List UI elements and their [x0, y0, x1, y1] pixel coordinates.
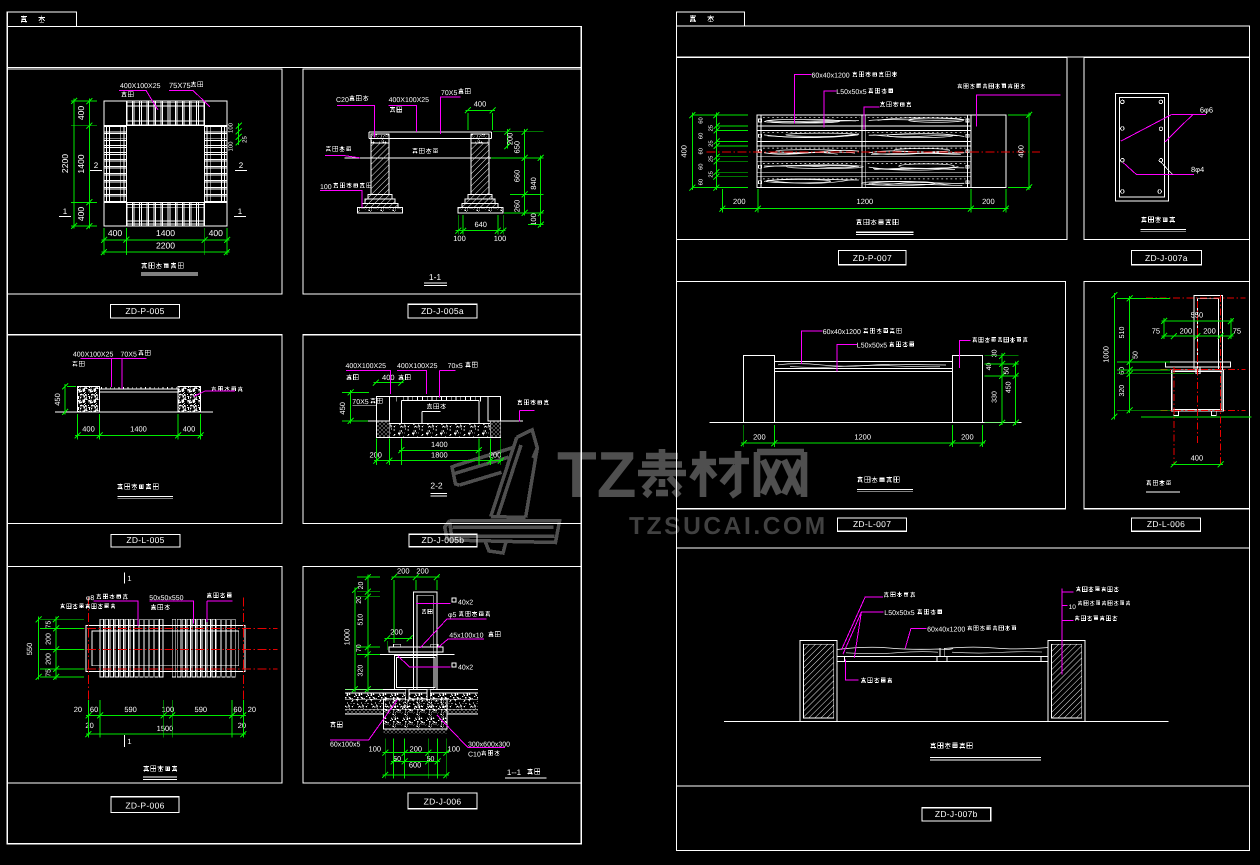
svg-text:100: 100 — [228, 122, 235, 133]
svg-text:75: 75 — [46, 669, 53, 677]
svg-text:200: 200 — [369, 450, 382, 459]
svg-text:ZD-J-006: ZD-J-006 — [424, 797, 462, 807]
svg-text:200: 200 — [1180, 326, 1193, 335]
svg-text:25: 25 — [708, 156, 715, 162]
svg-text:320: 320 — [357, 665, 364, 677]
svg-text:1400: 1400 — [156, 228, 175, 238]
svg-text:75X75: 75X75 — [169, 81, 191, 90]
svg-text:75: 75 — [1233, 326, 1241, 335]
svg-text:25: 25 — [708, 140, 715, 146]
svg-text:400: 400 — [680, 145, 689, 158]
svg-text:1400: 1400 — [76, 154, 86, 173]
svg-text:ZD-J-005a: ZD-J-005a — [421, 306, 464, 316]
svg-text:550: 550 — [1191, 311, 1204, 320]
svg-text:ZD-P-007: ZD-P-007 — [853, 253, 892, 263]
svg-text:400X100X25: 400X100X25 — [73, 351, 114, 358]
svg-text:200: 200 — [753, 433, 766, 442]
svg-text:660: 660 — [513, 170, 522, 183]
svg-text:550: 550 — [25, 643, 34, 656]
svg-text:50: 50 — [427, 756, 435, 763]
svg-text:1800: 1800 — [431, 450, 448, 459]
svg-text:20: 20 — [85, 721, 93, 730]
svg-text:590: 590 — [124, 705, 137, 714]
svg-text:400: 400 — [183, 425, 196, 434]
svg-text:510: 510 — [357, 614, 364, 626]
svg-text:200: 200 — [410, 745, 423, 754]
svg-text:50: 50 — [1004, 367, 1011, 375]
svg-text:330: 330 — [991, 391, 998, 403]
svg-text:ZD-J-005b: ZD-J-005b — [421, 535, 464, 545]
svg-text:100: 100 — [448, 745, 461, 754]
svg-text:400: 400 — [76, 207, 86, 222]
svg-text:200: 200 — [397, 567, 410, 576]
svg-text:1000: 1000 — [1102, 346, 1111, 363]
svg-text:1--1: 1--1 — [507, 768, 522, 777]
svg-text:6φ6: 6φ6 — [1200, 105, 1213, 114]
svg-text:10: 10 — [1069, 604, 1077, 611]
svg-text:200: 200 — [416, 567, 429, 576]
svg-text:100: 100 — [369, 745, 382, 754]
svg-text:40x2: 40x2 — [458, 600, 473, 607]
svg-text:ZD-L-006: ZD-L-006 — [1147, 519, 1185, 529]
svg-text:60: 60 — [698, 148, 705, 154]
svg-text:45x100x10: 45x100x10 — [449, 633, 483, 640]
svg-text:1-1: 1-1 — [429, 272, 442, 282]
svg-text:450: 450 — [338, 402, 347, 415]
svg-text:ZD-L-007: ZD-L-007 — [853, 519, 891, 529]
svg-text:φ8: φ8 — [86, 595, 95, 602]
svg-text:1: 1 — [238, 207, 243, 216]
svg-text:60: 60 — [233, 705, 241, 714]
svg-text:50: 50 — [1132, 351, 1139, 359]
svg-text:200: 200 — [733, 197, 746, 206]
svg-text:200: 200 — [1203, 326, 1216, 335]
svg-text:8φ4: 8φ4 — [1191, 165, 1204, 174]
svg-text:ZD-P-006: ZD-P-006 — [125, 800, 164, 810]
svg-text:1500: 1500 — [157, 724, 174, 733]
svg-text:200: 200 — [961, 433, 974, 442]
svg-text:50: 50 — [393, 756, 401, 763]
svg-text:70X5: 70X5 — [352, 399, 368, 406]
svg-text:1: 1 — [127, 574, 131, 583]
svg-text:400X100X25: 400X100X25 — [389, 97, 430, 104]
svg-text:590: 590 — [195, 705, 208, 714]
svg-text:60: 60 — [90, 705, 98, 714]
svg-text:1000: 1000 — [342, 629, 351, 646]
svg-text:450: 450 — [53, 393, 62, 406]
svg-text:60x40x1200: 60x40x1200 — [823, 329, 861, 336]
svg-text:25: 25 — [242, 136, 249, 143]
svg-text:100: 100 — [228, 141, 235, 152]
svg-text:ZD-L-005: ZD-L-005 — [126, 535, 164, 545]
svg-text:60x100x5: 60x100x5 — [330, 741, 360, 748]
svg-text:L50x50x5: L50x50x5 — [857, 343, 887, 350]
svg-text:400X100X25: 400X100X25 — [346, 363, 387, 370]
svg-text:200: 200 — [46, 633, 53, 645]
svg-text:2: 2 — [94, 161, 99, 170]
svg-text:400: 400 — [1191, 454, 1204, 463]
svg-text:650: 650 — [513, 141, 522, 154]
svg-text:20: 20 — [358, 582, 365, 590]
svg-text:400: 400 — [1016, 145, 1025, 158]
svg-text:840: 840 — [529, 177, 538, 190]
svg-text:640: 640 — [474, 220, 487, 229]
svg-text:1200: 1200 — [854, 433, 871, 442]
svg-text:400: 400 — [474, 100, 487, 109]
svg-text:75: 75 — [46, 621, 53, 629]
svg-text:20: 20 — [248, 705, 256, 714]
svg-text:20: 20 — [74, 705, 82, 714]
svg-text:TZSUCAI.COM: TZSUCAI.COM — [629, 513, 828, 540]
svg-text:2-2: 2-2 — [430, 481, 443, 491]
svg-text:400X100X25: 400X100X25 — [397, 363, 438, 370]
svg-text:1: 1 — [127, 737, 131, 746]
svg-text:320: 320 — [1119, 385, 1126, 397]
svg-text:1400: 1400 — [431, 440, 448, 449]
svg-text:C10: C10 — [468, 751, 481, 758]
svg-text:ZD-P-005: ZD-P-005 — [125, 306, 164, 316]
svg-text:100: 100 — [529, 213, 538, 226]
svg-text:60: 60 — [698, 133, 705, 139]
svg-text:70: 70 — [356, 644, 363, 652]
svg-text:70X5: 70X5 — [441, 90, 457, 97]
svg-text:70X5: 70X5 — [121, 351, 137, 358]
svg-text:2: 2 — [239, 161, 244, 170]
svg-text:400: 400 — [108, 228, 123, 238]
svg-text:200: 200 — [982, 197, 995, 206]
svg-text:TZ: TZ — [557, 438, 636, 511]
svg-text:450: 450 — [1005, 381, 1012, 393]
svg-text:60x40x1200: 60x40x1200 — [812, 73, 850, 80]
svg-text:400: 400 — [82, 425, 95, 434]
svg-text:400: 400 — [382, 373, 395, 382]
svg-text:200: 200 — [46, 653, 53, 665]
svg-text:1200: 1200 — [857, 197, 874, 206]
svg-text:100: 100 — [453, 234, 466, 243]
svg-text:ZD-J-007b: ZD-J-007b — [935, 809, 978, 819]
svg-text:400: 400 — [76, 106, 86, 121]
svg-text:200: 200 — [390, 628, 403, 637]
svg-text:600: 600 — [409, 760, 422, 769]
svg-text:25: 25 — [708, 171, 715, 177]
svg-text:C20: C20 — [336, 97, 349, 104]
svg-text:2200: 2200 — [60, 154, 70, 173]
svg-text:40x2: 40x2 — [458, 665, 473, 672]
svg-text:φ5: φ5 — [448, 612, 457, 619]
svg-text:75: 75 — [1152, 326, 1160, 335]
svg-text:100: 100 — [494, 234, 507, 243]
svg-text:60: 60 — [698, 117, 705, 123]
svg-text:400X100X25: 400X100X25 — [120, 83, 161, 90]
svg-text:L50x50x5: L50x50x5 — [836, 89, 866, 96]
svg-text:L50x50x5: L50x50x5 — [884, 610, 914, 617]
svg-text:20: 20 — [238, 721, 246, 730]
svg-text:60: 60 — [698, 163, 705, 169]
svg-text:400: 400 — [209, 228, 224, 238]
svg-text:60x40x1200: 60x40x1200 — [927, 627, 965, 634]
svg-text:70x5: 70x5 — [448, 363, 463, 370]
svg-text:60: 60 — [698, 179, 705, 185]
svg-text:1: 1 — [63, 207, 68, 216]
svg-text:510: 510 — [1119, 327, 1126, 339]
svg-text:1400: 1400 — [130, 425, 147, 434]
svg-text:100: 100 — [320, 184, 332, 191]
svg-text:2200: 2200 — [156, 241, 175, 251]
svg-text:260: 260 — [513, 200, 522, 213]
svg-text:ZD-J-007a: ZD-J-007a — [1145, 253, 1188, 263]
svg-text:25: 25 — [708, 125, 715, 131]
